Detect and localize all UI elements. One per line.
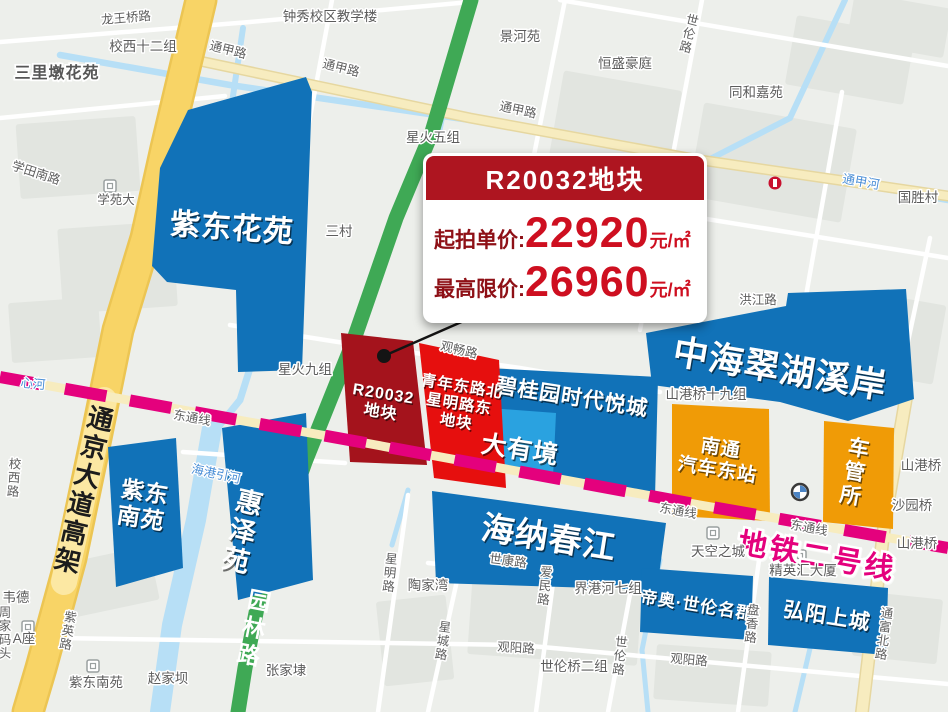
- map-label: A座: [13, 631, 36, 646]
- map-label: 陶家湾: [408, 577, 449, 593]
- building-icon: [87, 660, 99, 672]
- map-screenshot: 紫东花苑紫东南苑惠泽苑海纳春江碧桂园时代悦城大有境中海翠湖溪岸南通汽车东站车管所…: [0, 0, 948, 712]
- bmw-dealer-icon: [792, 484, 808, 500]
- map-label: 山港桥: [901, 458, 942, 473]
- map-label: 钟秀校区教学楼: [283, 8, 378, 24]
- map-label: 恒盛豪庭: [598, 55, 652, 71]
- map-label: 界港河七组: [574, 581, 642, 596]
- map-label: 世伦桥二组: [540, 659, 608, 674]
- map-label: 山港桥: [897, 536, 938, 551]
- building-icon: [104, 180, 116, 192]
- starting-price-unit: 元/㎡: [650, 227, 691, 253]
- parcel-label-zidongnanyuan: 紫东南苑: [115, 475, 171, 534]
- map-label: 三村: [326, 224, 353, 239]
- cap-price-unit: 元/㎡: [650, 276, 691, 302]
- callout-title: R20032地块: [426, 156, 704, 200]
- map-label: 周家码头: [0, 605, 12, 660]
- starting-price-label: 起拍单价:: [434, 224, 525, 254]
- starting-price-row: 起拍单价:22920元/㎡: [434, 210, 698, 257]
- leader-dot: [377, 349, 391, 363]
- map-label: 校西十二组: [109, 38, 177, 54]
- bank-icon: [769, 177, 782, 190]
- map-label: 学苑大: [97, 192, 135, 207]
- map-label: 韦德: [3, 590, 30, 605]
- map-label: 精英汇大厦: [769, 562, 837, 578]
- map-label: 沙园桥: [892, 498, 933, 513]
- map-label: 紫东南苑: [69, 675, 123, 690]
- map-label: 山港桥十九组: [666, 387, 747, 402]
- building-icon: [707, 527, 719, 539]
- callout-body: 起拍单价:22920元/㎡ 最高限价:26960元/㎡: [426, 200, 704, 307]
- cap-price-label: 最高限价:: [434, 273, 525, 303]
- map-label: 星火五组: [406, 130, 460, 145]
- map-label: 国胜村: [898, 190, 939, 205]
- map-label: 观阳路: [497, 639, 536, 656]
- map-label: 同和嘉苑: [729, 85, 783, 100]
- map-label: 三里墩花苑: [14, 63, 99, 82]
- map-label: 景河苑: [500, 29, 541, 44]
- map-canvas[interactable]: 紫东花苑紫东南苑惠泽苑海纳春江碧桂园时代悦城大有境中海翠湖溪岸南通汽车东站车管所…: [0, 0, 948, 712]
- map-label: 张家埭: [266, 662, 307, 678]
- map-label: 洪江路: [739, 292, 777, 307]
- map-label: 星火九组: [278, 362, 332, 377]
- map-label: 天空之城: [691, 544, 745, 559]
- cap-price-row: 最高限价:26960元/㎡: [434, 259, 698, 306]
- map-label: 心河: [20, 376, 47, 392]
- starting-price-value: 22920: [525, 210, 650, 257]
- map-label: 赵家坝: [148, 670, 189, 686]
- parcel-info-callout: R20032地块 起拍单价:22920元/㎡ 最高限价:26960元/㎡: [423, 153, 707, 323]
- cap-price-value: 26960: [525, 259, 650, 306]
